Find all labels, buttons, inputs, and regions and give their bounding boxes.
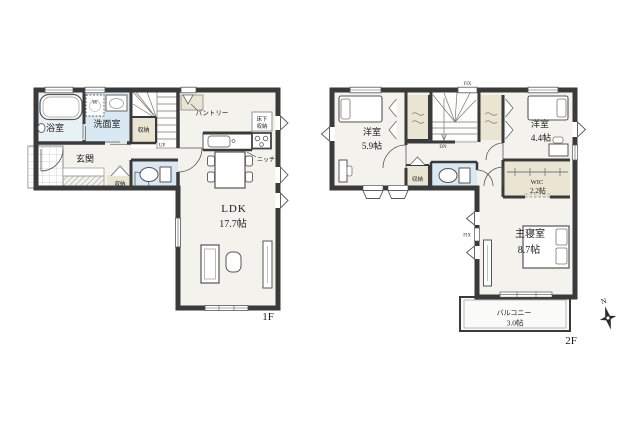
- closet2-floor: [479, 95, 503, 140]
- window-ldk-right-3: [275, 193, 288, 208]
- kitchen-sink: [208, 136, 230, 147]
- underfloor-storage-label1: 床下: [256, 115, 268, 123]
- window-fix-top: [458, 87, 477, 93]
- underfloor-storage: 床下 収納: [252, 112, 272, 131]
- floor-label-2f: 2F: [565, 335, 577, 347]
- stairs-2f-floor: [431, 92, 477, 140]
- room-size-wic: 2.2帖: [530, 186, 546, 195]
- window-bedroom1-bottom-1: [363, 185, 383, 198]
- room-label-wic: WIC: [531, 179, 544, 186]
- window-bedroom1-left: [322, 127, 335, 141]
- window-master-fix-left: [474, 228, 479, 241]
- room-size-ldk: 17.7帖: [219, 217, 247, 230]
- toilet-2f: [439, 168, 470, 183]
- stove: [252, 133, 271, 149]
- room-label-pantry: パントリー: [196, 109, 229, 117]
- room-label-entrance-closet: 収納: [114, 180, 126, 188]
- stairs-up-label: UP: [159, 144, 166, 149]
- washer-label: W: [92, 100, 98, 106]
- underfloor-storage-label2: 収納: [256, 122, 268, 130]
- window-bath-top: [45, 87, 73, 93]
- bath-sink: [38, 124, 45, 133]
- window-ldk-left: [175, 218, 180, 247]
- window-master-left-2: [467, 246, 480, 259]
- room-label-niche: ニッチ: [257, 157, 275, 164]
- window-bedroom1-top: [350, 87, 381, 93]
- room-size-master: 8.7帖: [518, 243, 541, 256]
- window-washroom-top: [85, 87, 105, 93]
- kitchen-counter: [203, 133, 252, 150]
- window-ldk-bottom: [205, 305, 248, 310]
- stairs-dn-label: DN: [439, 145, 447, 150]
- room-label-bedroom2: 洋室: [531, 118, 549, 129]
- room-label-ldk: LDK: [221, 203, 247, 215]
- window-bedroom2-right: [572, 122, 585, 137]
- room-size-bedroom1: 5.9帖: [362, 140, 382, 151]
- bed-bedroom1: [339, 96, 382, 122]
- tv-board-1f: [263, 241, 272, 288]
- washing-machine: W: [86, 95, 104, 116]
- room-label-bedroom1: 洋室: [363, 126, 381, 137]
- room-label-stair-closet: 収納: [137, 126, 149, 134]
- bathtub: [40, 95, 82, 120]
- toilet-1f: [140, 167, 171, 182]
- compass-rose: N: [594, 295, 619, 332]
- sofa: [201, 245, 219, 283]
- floorplan-canvas: W 床下 収納: [0, 0, 640, 426]
- window-bedroom2-top: [528, 87, 558, 93]
- room-label-bath: 浴室: [46, 122, 64, 133]
- floor-2f: 洋室 5.9帖 洋室 4.4帖 収納 WIC 2.2帖 主寝室 8.7帖 バルコ…: [322, 82, 586, 347]
- room-label-master: 主寝室: [515, 227, 545, 240]
- tv-board-master: [484, 240, 492, 286]
- fix-label-top: FIX: [464, 82, 472, 87]
- floor-label-1f: 1F: [262, 311, 274, 323]
- coffee-table: [226, 252, 241, 272]
- floorplan-page: W 床下 収納: [0, 0, 640, 426]
- window-bedroom1-bottom-2: [388, 185, 408, 198]
- window-right-wall: [572, 145, 577, 160]
- bed-bedroom2: [528, 96, 568, 120]
- room-size-balcony: 3.0帖: [507, 318, 524, 328]
- compass-north-label: N: [600, 296, 608, 306]
- window-master-left-1: [467, 212, 480, 225]
- room-label-hall-closet: 収納: [412, 175, 424, 183]
- window-ldk-right-1: [275, 116, 288, 130]
- washroom-sink: [106, 95, 127, 111]
- room-size-bedroom2: 4.4帖: [531, 132, 551, 143]
- room-label-entrance: 玄関: [76, 153, 94, 164]
- room-label-washroom: 洗面室: [93, 118, 120, 129]
- closet1-floor: [406, 95, 429, 140]
- room-label-balcony: バルコニー: [497, 309, 532, 317]
- window-ldk-right-2: [275, 167, 288, 183]
- window-master-balcony: [500, 292, 552, 297]
- entrance-step: [63, 168, 104, 186]
- floor-1f: W 床下 収納: [28, 87, 288, 323]
- entrance-porch-tiles: [28, 146, 63, 188]
- fix-label-left: FIX: [463, 234, 471, 239]
